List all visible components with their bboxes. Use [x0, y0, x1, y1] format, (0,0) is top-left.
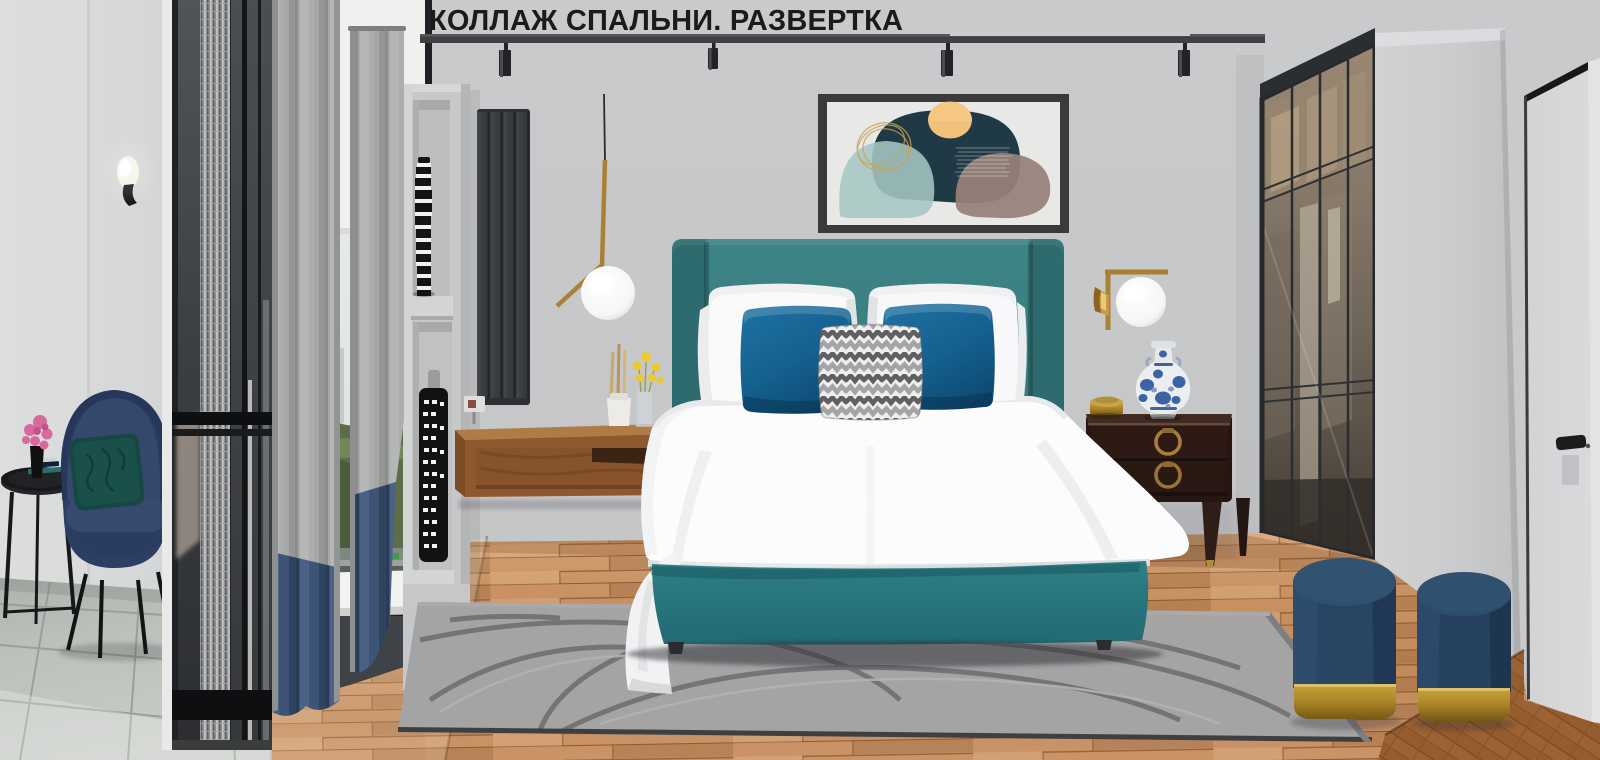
svg-text:КОЛЛАЖ СПАЛЬНИ. РАЗВЕРТКА: КОЛЛАЖ СПАЛЬНИ. РАЗВЕРТКА	[429, 5, 903, 37]
